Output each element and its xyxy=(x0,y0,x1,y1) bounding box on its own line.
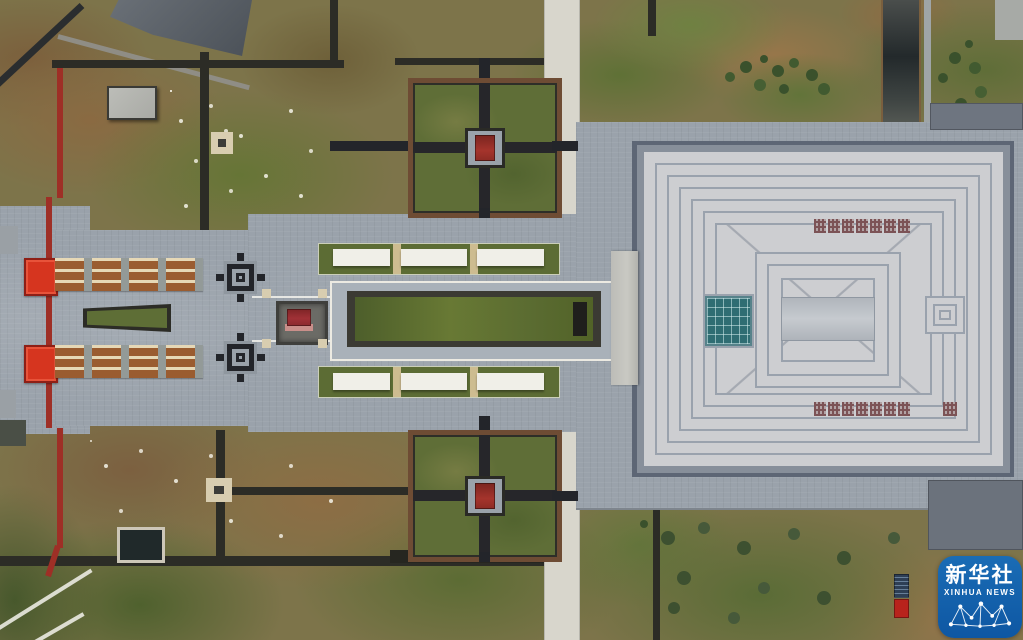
roof-vent-cluster xyxy=(898,402,910,416)
garden-arm xyxy=(479,416,490,430)
pergola-canopy xyxy=(333,249,390,266)
garden-divider xyxy=(393,244,401,274)
garden-arm xyxy=(479,208,490,218)
lawn-end-stone xyxy=(573,302,587,336)
pond-arm xyxy=(237,374,244,382)
roof-vent-cluster xyxy=(814,402,826,416)
annex-roof-west-north xyxy=(0,226,18,254)
cross-pond-south xyxy=(224,341,257,374)
pond-arm xyxy=(237,333,244,341)
pergola-canopy xyxy=(401,249,467,266)
red-truck-cab xyxy=(894,599,909,618)
pond-arm xyxy=(237,294,244,302)
roof-vent-cluster xyxy=(856,219,868,233)
corner-road-northeast xyxy=(995,0,1023,40)
garden-path-vertical-nw xyxy=(200,52,209,248)
roof-vent-cluster xyxy=(856,402,868,416)
garden-center-platform xyxy=(465,128,505,168)
pond-arm xyxy=(257,274,265,281)
pond-arm xyxy=(216,274,224,281)
roof-vent-cluster xyxy=(898,219,910,233)
roof-vent-cluster xyxy=(842,219,854,233)
roof-vent-cluster xyxy=(870,219,882,233)
cross-pond-north xyxy=(224,261,257,294)
red-wall-south xyxy=(57,428,63,548)
pergola-canopy xyxy=(333,373,390,390)
pergola-canopy xyxy=(401,373,467,390)
roof-vent-cluster xyxy=(828,402,840,416)
teal-skylight-grid xyxy=(705,296,752,346)
corner-pad xyxy=(318,339,327,348)
watermark-text-cn: 新华社 xyxy=(938,565,1022,587)
corner-pad xyxy=(262,339,271,348)
small-building-roof xyxy=(107,86,157,120)
median-lawn xyxy=(87,308,167,328)
red-wall xyxy=(46,197,52,259)
garden-arm xyxy=(330,141,408,151)
shrub-grove-top xyxy=(760,55,768,63)
garden-divider xyxy=(393,367,401,397)
roof-vent-cluster xyxy=(842,402,854,416)
sapling-speckles-southwest xyxy=(90,440,92,442)
garden-path-vertical-topcenter xyxy=(330,0,338,62)
shrub-grove-topright xyxy=(965,40,973,48)
roof-vent-cluster xyxy=(884,219,896,233)
red-monument xyxy=(287,309,311,326)
paved-pad-north xyxy=(211,132,233,154)
roof-vent-cluster xyxy=(828,219,840,233)
stepped-ramp-south xyxy=(55,345,203,378)
roof-vent-cluster xyxy=(884,402,896,416)
sapling-speckles xyxy=(170,90,172,92)
garden-path-vertical-se xyxy=(653,505,660,640)
red-pavilion-north xyxy=(475,135,495,161)
pergola-canopy xyxy=(477,249,544,266)
pond-center xyxy=(239,356,242,359)
sunken-lawn xyxy=(355,297,593,341)
cross-garden-north xyxy=(408,78,562,218)
watermark-text-en: XINHUA NEWS xyxy=(938,588,1022,597)
stepped-ramp-north xyxy=(55,258,203,291)
median-lawn-border xyxy=(83,304,171,332)
aerial-photo: 新华社 XINHUA NEWS xyxy=(0,0,1023,640)
garden-path-horizontal-nw xyxy=(52,60,344,68)
shrub-grove-bottom xyxy=(640,520,648,528)
wet-service-road xyxy=(883,0,919,126)
roof-corner-square xyxy=(925,296,965,334)
paved-pad-south xyxy=(206,478,232,502)
pond-arm xyxy=(216,354,224,361)
annex-roof-west-south xyxy=(0,390,16,418)
red-pavilion-south xyxy=(475,483,495,509)
roof-vent-cluster xyxy=(943,402,957,416)
red-wall-north xyxy=(57,68,63,198)
xinhua-watermark-badge: 新华社 XINHUA NEWS xyxy=(938,556,1022,638)
network-constellation-icon xyxy=(945,599,1015,629)
garden-arm xyxy=(479,552,490,562)
corner-pad xyxy=(262,289,271,298)
dark-pond xyxy=(117,527,165,563)
red-gate-south xyxy=(24,345,58,383)
annex-roof-southeast xyxy=(928,480,1023,550)
annex-roof-northeast xyxy=(930,103,1023,130)
corner-pad xyxy=(318,289,327,298)
pond-center xyxy=(239,276,242,279)
red-wall xyxy=(46,378,52,428)
annex-roof-west-dark xyxy=(0,420,26,446)
garden-arm xyxy=(552,141,578,151)
cross-garden-south xyxy=(408,430,562,562)
garden-center-platform xyxy=(465,476,505,516)
roof-vent-cluster xyxy=(814,219,826,233)
truck-trailer xyxy=(894,574,909,598)
central-skylight xyxy=(781,297,875,341)
garden-arm xyxy=(479,58,490,78)
pond-arm xyxy=(257,354,265,361)
garden-arm xyxy=(552,491,578,501)
red-gate-north xyxy=(24,258,58,296)
pergola-canopy xyxy=(477,373,544,390)
roof-vent-cluster xyxy=(870,402,882,416)
red-wall-middle xyxy=(46,291,52,347)
entrance-canopy xyxy=(611,251,638,385)
pond-arm xyxy=(237,253,244,261)
garden-path-vertical-ne xyxy=(648,0,656,36)
